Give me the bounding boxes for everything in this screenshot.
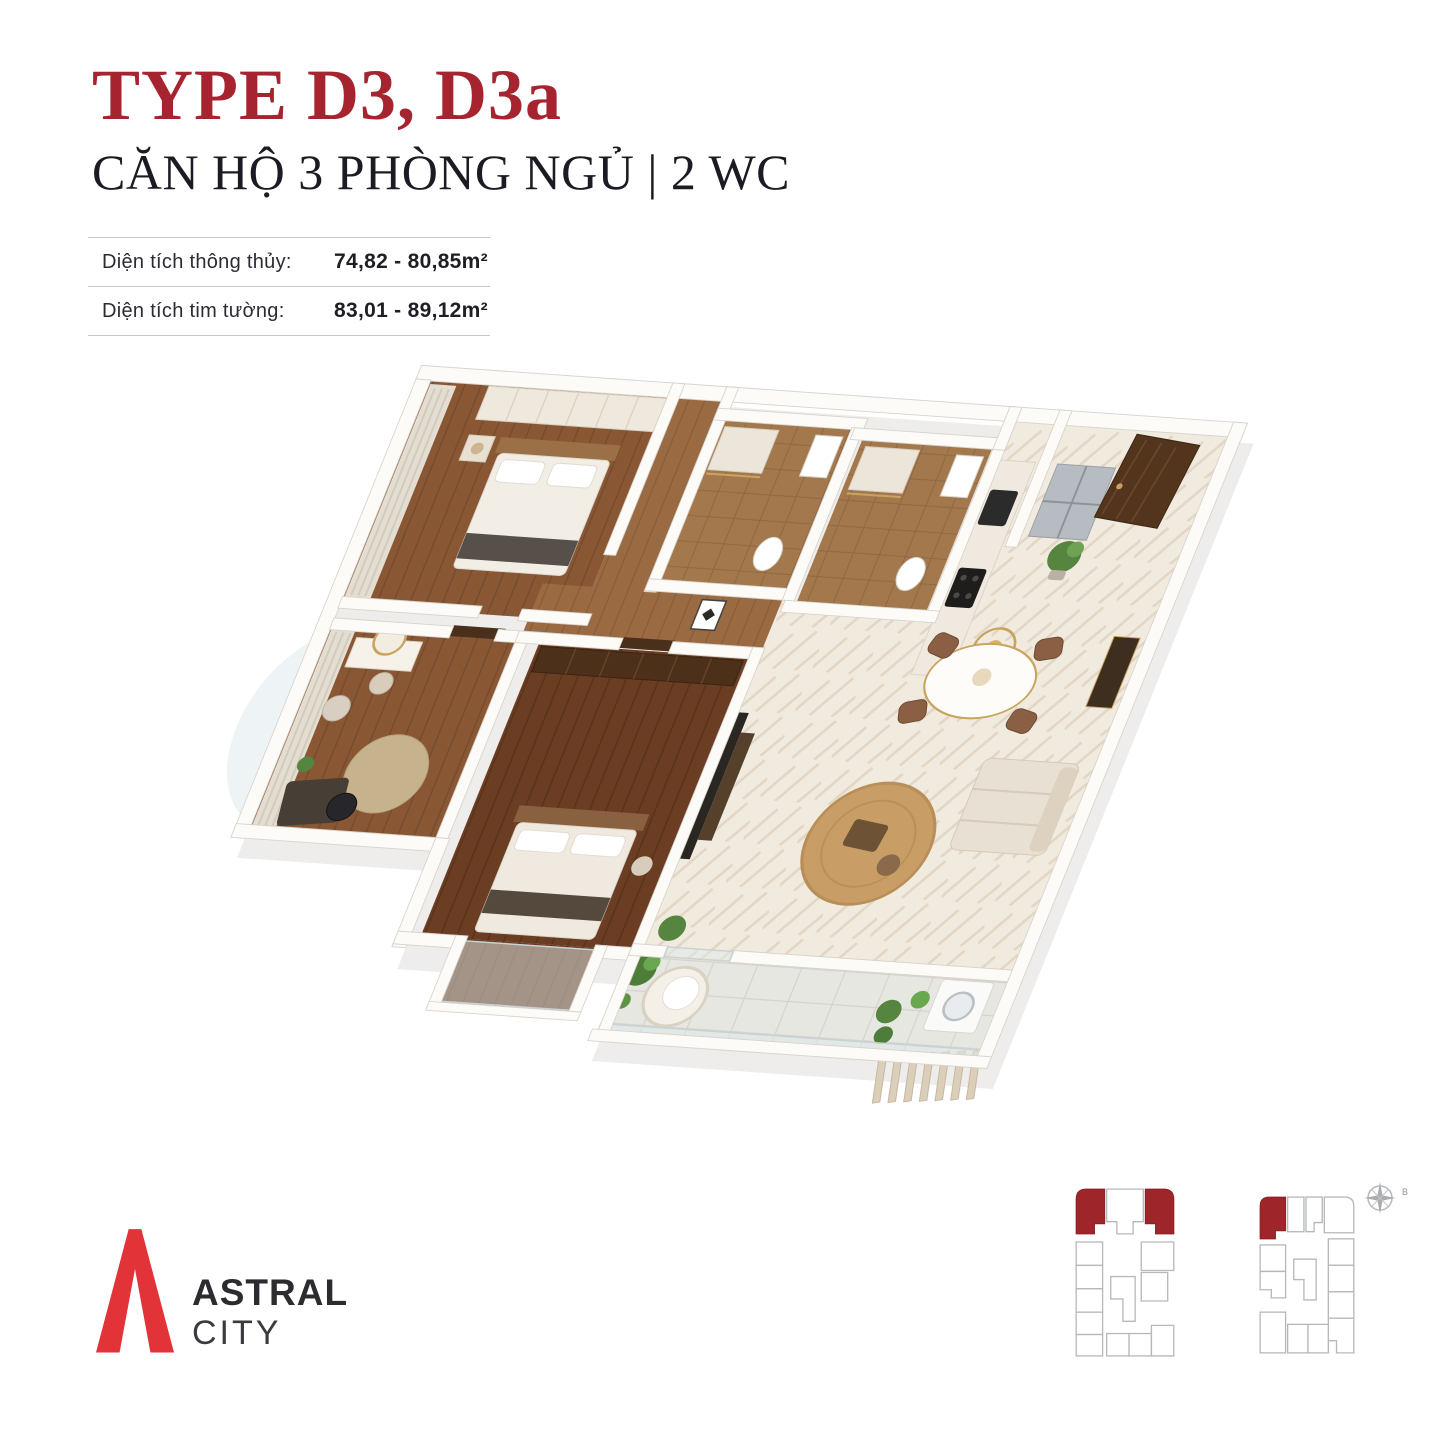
- compass-north-label: B: [1402, 1187, 1408, 1197]
- highlighted-unit: [1260, 1197, 1285, 1239]
- pillow: [545, 463, 598, 488]
- pillow: [513, 829, 571, 853]
- astral-city-logo-mark-icon: [96, 1222, 174, 1356]
- keyplan-left: [1070, 1183, 1182, 1361]
- keyplan-right: [1255, 1192, 1362, 1360]
- brochure-page: TYPE D3, D3a CĂN HỘ 3 PHÒNG NGỦ | 2 WC D…: [0, 0, 1447, 1447]
- brand-name-bottom: CITY: [192, 1316, 348, 1350]
- brand-logo: ASTRAL CITY: [96, 1222, 348, 1356]
- highlighted-unit: [1145, 1189, 1173, 1234]
- pillow: [494, 459, 547, 484]
- pillow: [569, 833, 627, 857]
- compass-icon: B: [1364, 1180, 1420, 1216]
- brand-name-top: ASTRAL: [192, 1274, 348, 1311]
- brand-wordmark: ASTRAL CITY: [192, 1274, 348, 1356]
- highlighted-unit: [1076, 1189, 1104, 1234]
